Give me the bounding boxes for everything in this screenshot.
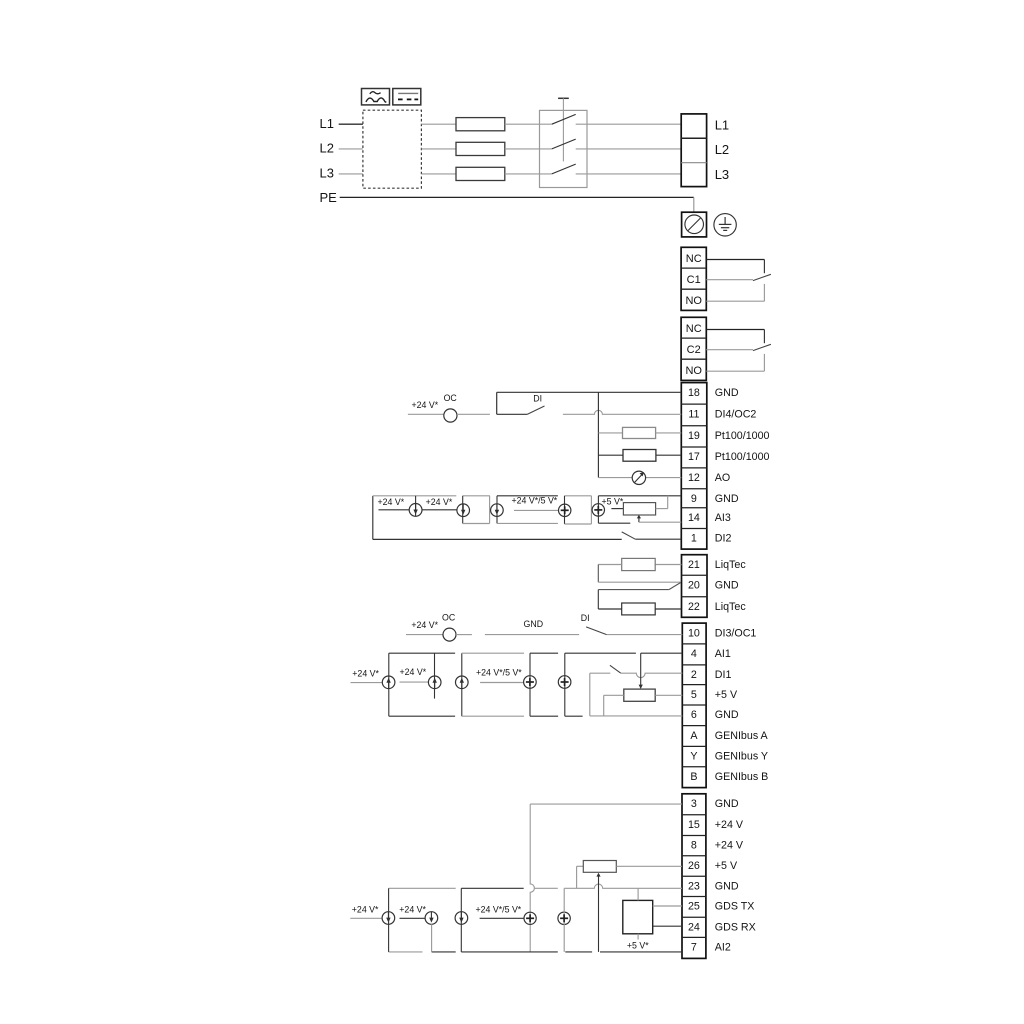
svg-text:+5 V: +5 V [715,860,738,872]
svg-text:NO: NO [685,365,702,377]
svg-text:Pt100/1000: Pt100/1000 [715,451,770,463]
svg-text:+24 V: +24 V [715,819,744,831]
svg-text:C2: C2 [687,344,701,356]
svg-text:+24 V*: +24 V* [378,497,405,507]
svg-text:PE: PE [320,190,338,205]
svg-text:DI1: DI1 [715,669,732,681]
svg-text:+24 V*: +24 V* [426,497,453,507]
svg-text:+24 V*/5 V*: +24 V*/5 V* [512,496,558,506]
svg-text:GND: GND [715,709,739,721]
svg-text:+24 V: +24 V [715,840,744,852]
svg-text:12: 12 [688,472,700,484]
svg-text:GDS TX: GDS TX [715,901,755,913]
svg-text:+24 V*/5 V*: +24 V*/5 V* [476,667,522,677]
svg-text:AI2: AI2 [715,942,731,954]
svg-text:A: A [690,730,698,742]
svg-text:+24 V*: +24 V* [400,667,427,677]
svg-text:3: 3 [691,798,697,810]
svg-text:11: 11 [688,408,699,420]
svg-text:AI1: AI1 [715,648,731,660]
svg-text:DI: DI [581,613,590,623]
svg-text:18: 18 [688,387,700,399]
svg-text:AO: AO [715,472,730,484]
svg-text:+24 V*: +24 V* [412,400,439,410]
svg-text:NC: NC [686,323,702,335]
svg-text:GND: GND [715,493,739,505]
svg-text:DI: DI [533,394,542,404]
svg-text:L2: L2 [320,141,334,156]
svg-text:L1: L1 [715,118,729,133]
svg-text:21: 21 [688,559,700,571]
svg-text:+5 V*: +5 V* [602,497,624,507]
svg-text:GND: GND [715,580,739,592]
svg-text:GND: GND [715,387,739,399]
svg-text:AI3: AI3 [715,512,731,524]
svg-text:LiqTec: LiqTec [715,559,747,571]
svg-text:23: 23 [688,881,700,893]
svg-text:L3: L3 [715,167,729,182]
svg-text:14: 14 [688,512,700,524]
svg-text:1: 1 [691,533,697,545]
svg-text:24: 24 [688,922,700,934]
svg-text:L3: L3 [320,166,334,181]
svg-text:GND: GND [715,798,739,810]
svg-text:+24 V*: +24 V* [352,669,379,679]
svg-text:19: 19 [688,430,700,442]
svg-text:6: 6 [691,709,697,721]
svg-text:Y: Y [690,751,697,763]
svg-text:DI2: DI2 [715,533,732,545]
svg-text:GENIbus A: GENIbus A [715,730,769,742]
svg-text:GND: GND [524,619,544,629]
svg-text:GENIbus B: GENIbus B [715,771,768,783]
svg-text:GND: GND [715,881,739,893]
svg-text:+5 V*: +5 V* [627,941,649,951]
svg-text:OC: OC [444,393,458,403]
svg-text:NC: NC [686,253,702,265]
svg-text:22: 22 [688,601,700,613]
svg-text:10: 10 [688,627,700,639]
svg-text:9: 9 [691,493,697,505]
svg-text:2: 2 [691,669,697,681]
svg-text:L2: L2 [715,142,729,157]
svg-text:DI3/OC1: DI3/OC1 [715,627,757,639]
svg-text:15: 15 [688,819,700,831]
svg-text:LiqTec: LiqTec [715,601,747,613]
svg-text:OC: OC [442,612,456,622]
svg-text:4: 4 [691,648,697,660]
svg-text:Pt100/1000: Pt100/1000 [715,430,770,442]
svg-text:+24 V*: +24 V* [352,905,379,915]
svg-text:7: 7 [691,942,697,954]
svg-text:NO: NO [685,295,702,307]
svg-text:26: 26 [688,860,700,872]
svg-text:8: 8 [691,840,697,852]
svg-text:17: 17 [688,451,700,463]
svg-text:GDS RX: GDS RX [715,922,756,934]
svg-text:C1: C1 [687,274,701,286]
svg-text:GENIbus Y: GENIbus Y [715,751,768,763]
svg-text:+24 V*: +24 V* [399,905,426,915]
svg-text:20: 20 [688,580,700,592]
svg-text:DI4/OC2: DI4/OC2 [715,408,757,420]
svg-text:+5 V: +5 V [715,689,738,701]
svg-text:+24 V*: +24 V* [411,620,438,630]
svg-text:25: 25 [688,901,700,913]
svg-text:L1: L1 [320,116,334,131]
svg-text:B: B [690,771,697,783]
svg-text:5: 5 [691,689,697,701]
svg-text:+24 V*/5 V*: +24 V*/5 V* [476,905,522,915]
